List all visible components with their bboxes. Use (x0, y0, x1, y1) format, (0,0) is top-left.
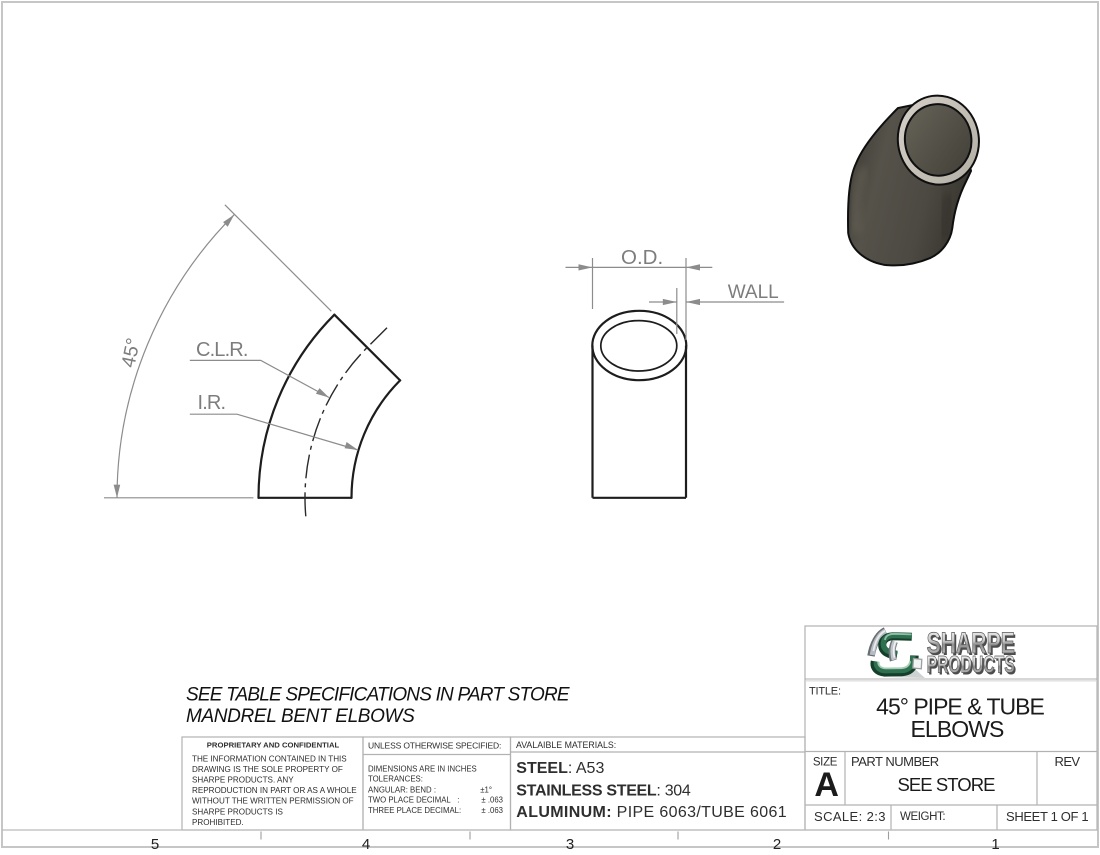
svg-text:THE INFORMATION CONTAINED IN T: THE INFORMATION CONTAINED IN THIS (192, 755, 347, 764)
svg-text:AVALAIBLE MATERIALS:: AVALAIBLE MATERIALS: (516, 740, 616, 750)
svg-text:DRAWING IS THE SOLE PROPERTY O: DRAWING IS THE SOLE PROPERTY OF (192, 765, 343, 774)
svg-text:A: A (814, 766, 839, 804)
svg-text:TWO PLACE DECIMAL :: TWO PLACE DECIMAL : (368, 796, 459, 805)
svg-text:WITHOUT THE WRITTEN PERMISSION: WITHOUT THE WRITTEN PERMISSION OF (192, 797, 354, 806)
svg-text:1: 1 (991, 836, 999, 850)
svg-text:± .063: ± .063 (481, 796, 503, 805)
svg-text:ALUMINUM: PIPE 6063/TUBE 6061: ALUMINUM: PIPE 6063/TUBE 6061 (516, 804, 787, 821)
svg-text:PRODUCTS: PRODUCTS (927, 652, 1015, 678)
svg-text:SEE STORE: SEE STORE (897, 774, 995, 795)
svg-text:UNLESS OTHERWISE SPECIFIED:: UNLESS OTHERWISE SPECIFIED: (368, 740, 501, 750)
svg-text:C.L.R.: C.L.R. (196, 339, 248, 361)
svg-text:I.R.: I.R. (198, 392, 226, 414)
svg-text:SHEET 1 OF 1: SHEET 1 OF 1 (1006, 809, 1088, 824)
svg-text:REPRODUCTION IN PART OR AS A W: REPRODUCTION IN PART OR AS A WHOLE (192, 786, 357, 795)
svg-text:±1°: ±1° (480, 785, 492, 794)
svg-text:SHARPE PRODUCTS. ANY: SHARPE PRODUCTS. ANY (192, 776, 294, 785)
svg-text:4: 4 (362, 836, 370, 850)
svg-text:WEIGHT:: WEIGHT: (900, 811, 945, 823)
svg-text:± .063: ± .063 (481, 806, 503, 815)
svg-text:PROHIBITED.: PROHIBITED. (192, 818, 244, 827)
svg-text:PROPRIETARY AND CONFIDENTIAL: PROPRIETARY AND CONFIDENTIAL (207, 741, 340, 750)
svg-text:STEEL: A53: STEEL: A53 (516, 760, 604, 777)
svg-text:PART NUMBER: PART NUMBER (851, 754, 939, 769)
svg-text:TITLE:: TITLE: (809, 686, 841, 698)
svg-text:3: 3 (566, 836, 574, 850)
svg-text:SCALE: 2:3: SCALE: 2:3 (814, 809, 886, 824)
svg-text:THREE PLACE DECIMAL:: THREE PLACE DECIMAL: (368, 806, 461, 815)
svg-text:2: 2 (773, 836, 781, 850)
svg-text:STAINLESS STEEL: 304: STAINLESS STEEL: 304 (516, 783, 691, 800)
svg-text:SEE TABLE SPECIFICATIONS IN PA: SEE TABLE SPECIFICATIONS IN PART STORE (186, 685, 570, 706)
svg-text:ELBOWS: ELBOWS (910, 716, 1004, 742)
svg-text:O.D.: O.D. (621, 246, 663, 269)
svg-text:5: 5 (151, 836, 159, 850)
svg-text:ANGULAR: BEND :: ANGULAR: BEND : (368, 785, 436, 794)
svg-text:SHARPE PRODUCTS IS: SHARPE PRODUCTS IS (192, 807, 283, 816)
svg-text:WALL: WALL (728, 282, 779, 303)
svg-text:TOLERANCES:: TOLERANCES: (368, 775, 423, 784)
svg-text:DIMENSIONS ARE IN INCHES: DIMENSIONS ARE IN INCHES (368, 765, 477, 774)
svg-text:MANDREL BENT ELBOWS: MANDREL BENT ELBOWS (186, 706, 415, 727)
svg-text:REV: REV (1055, 754, 1081, 769)
